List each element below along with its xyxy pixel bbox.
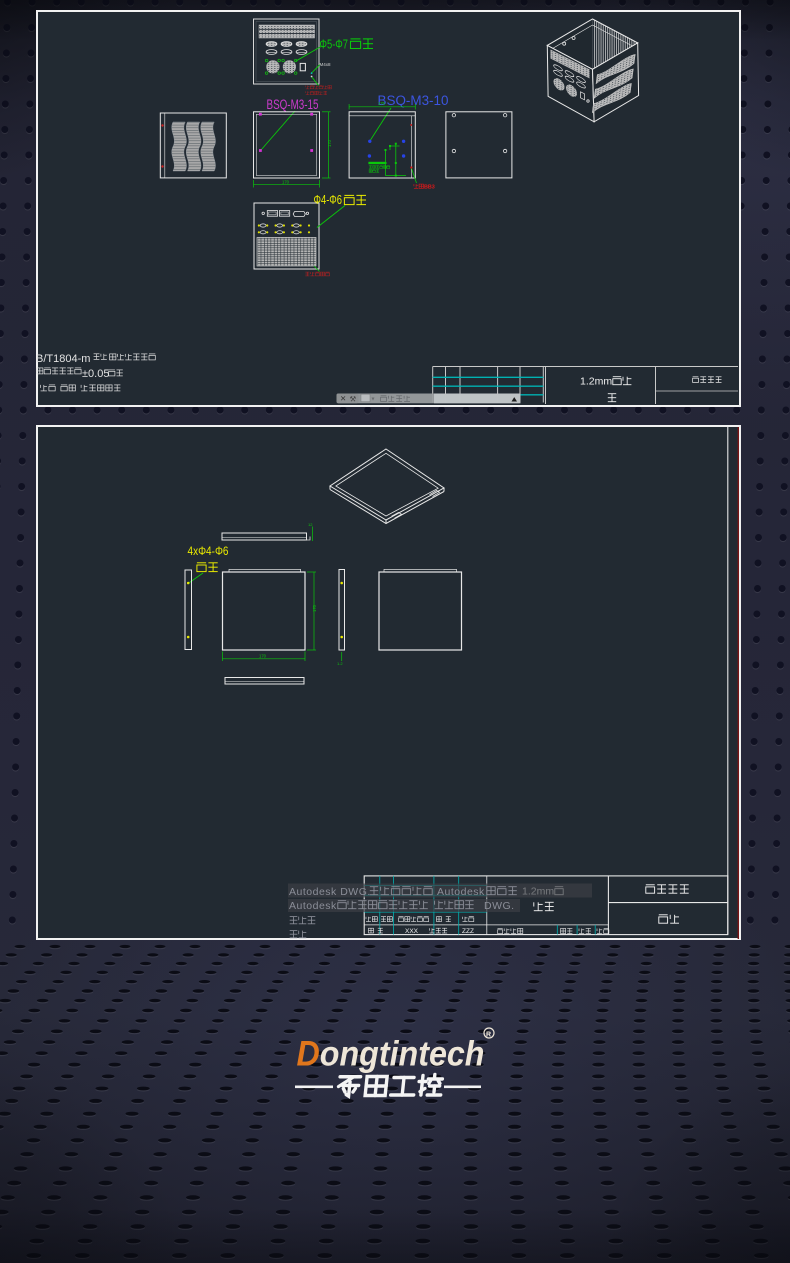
svg-text:BB3: BB3 [424,184,435,190]
svg-text:R: R [486,1032,491,1039]
svg-text:Dongtintech: Dongtintech [297,1034,485,1074]
svg-text:±0.05: ±0.05 [82,368,109,380]
svg-text:BSQ-M3-10: BSQ-M3-10 [378,93,449,108]
svg-text:12: 12 [308,522,313,527]
svg-text:Autodesk: Autodesk [437,886,485,898]
svg-text:B/T1804-m: B/T1804-m [36,353,90,365]
svg-text:M4x8: M4x8 [320,62,332,67]
svg-text:BSQ-M3-15: BSQ-M3-15 [267,97,319,112]
svg-text:ZZZ: ZZZ [462,928,474,935]
svg-text:Φ5-Φ7: Φ5-Φ7 [320,38,349,52]
svg-text:DWG.: DWG. [484,900,515,912]
svg-text:Autodesk DWG.: Autodesk DWG. [289,886,371,898]
svg-text:⚒: ⚒ [350,395,357,404]
svg-text:1.2mm: 1.2mm [580,376,612,388]
svg-text:XXX: XXX [405,928,419,935]
svg-text:Autodesk: Autodesk [289,900,337,912]
svg-text:170: 170 [378,101,386,106]
svg-text:170: 170 [312,604,317,612]
svg-text:170: 170 [327,139,332,147]
svg-text:✕: ✕ [340,394,346,403]
svg-text:▾: ▾ [372,397,375,403]
svg-text:1.2: 1.2 [337,661,343,666]
svg-text:Φ4-Φ6: Φ4-Φ6 [314,193,343,207]
svg-text:170: 170 [282,180,290,185]
svg-text:4xΦ4-Φ6: 4xΦ4-Φ6 [188,546,229,558]
svg-text:170: 170 [259,654,267,659]
